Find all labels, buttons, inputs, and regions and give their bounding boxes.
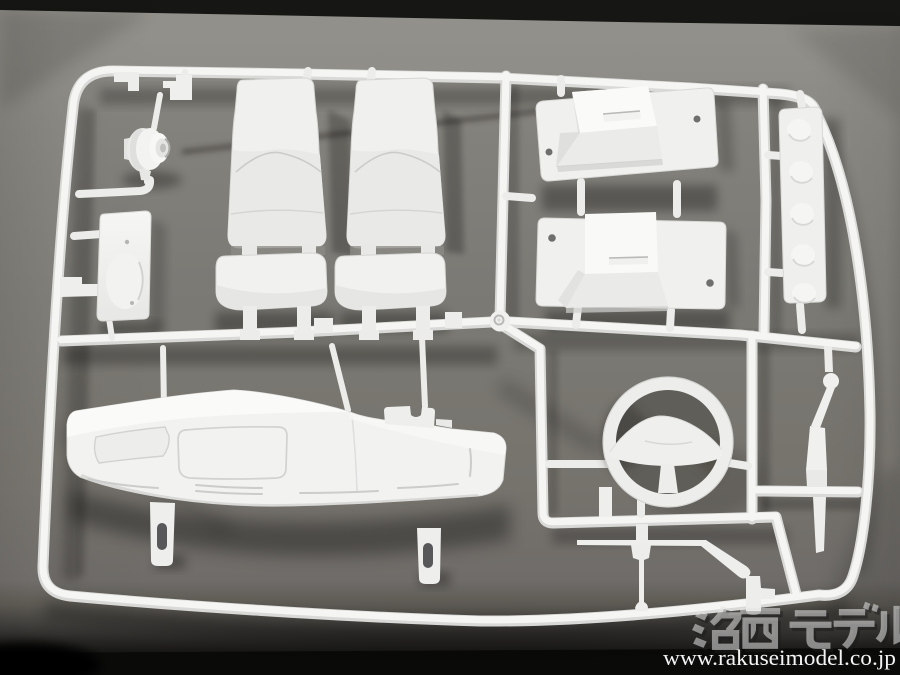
svg-text:www.rakuseimodel.co.jp: www.rakuseimodel.co.jp bbox=[663, 645, 896, 670]
